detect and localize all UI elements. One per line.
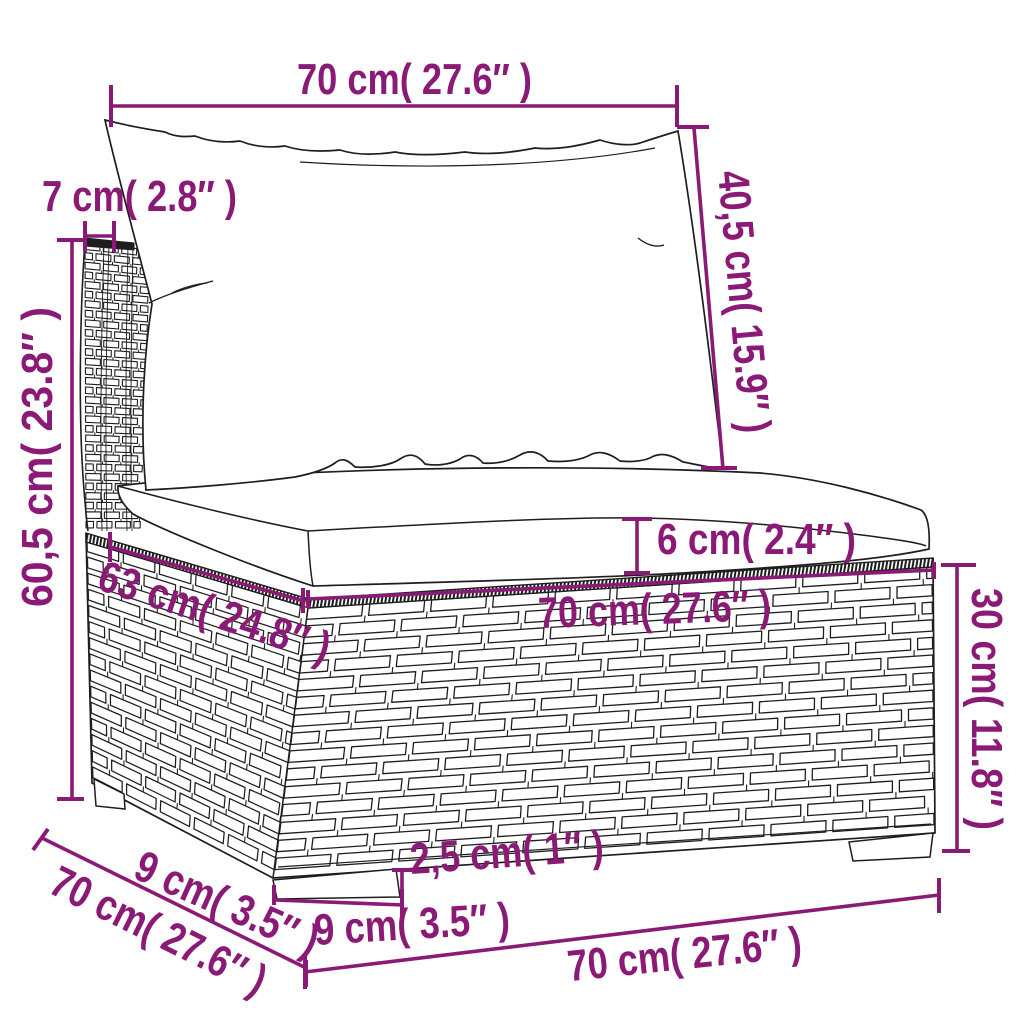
svg-text:60,5 cm( 23.8″ ): 60,5 cm( 23.8″ )	[13, 307, 62, 607]
svg-text:70 cm( 27.6″ ): 70 cm( 27.6″ )	[537, 581, 772, 638]
svg-text:7 cm( 2.8″ ): 7 cm( 2.8″ )	[42, 172, 237, 221]
svg-text:70 cm( 27.6″ ): 70 cm( 27.6″ )	[297, 55, 532, 104]
svg-text:6 cm( 2.4″ ): 6 cm( 2.4″ )	[657, 515, 856, 564]
svg-text:30 cm( 11.8″ ): 30 cm( 11.8″ )	[962, 588, 1011, 830]
